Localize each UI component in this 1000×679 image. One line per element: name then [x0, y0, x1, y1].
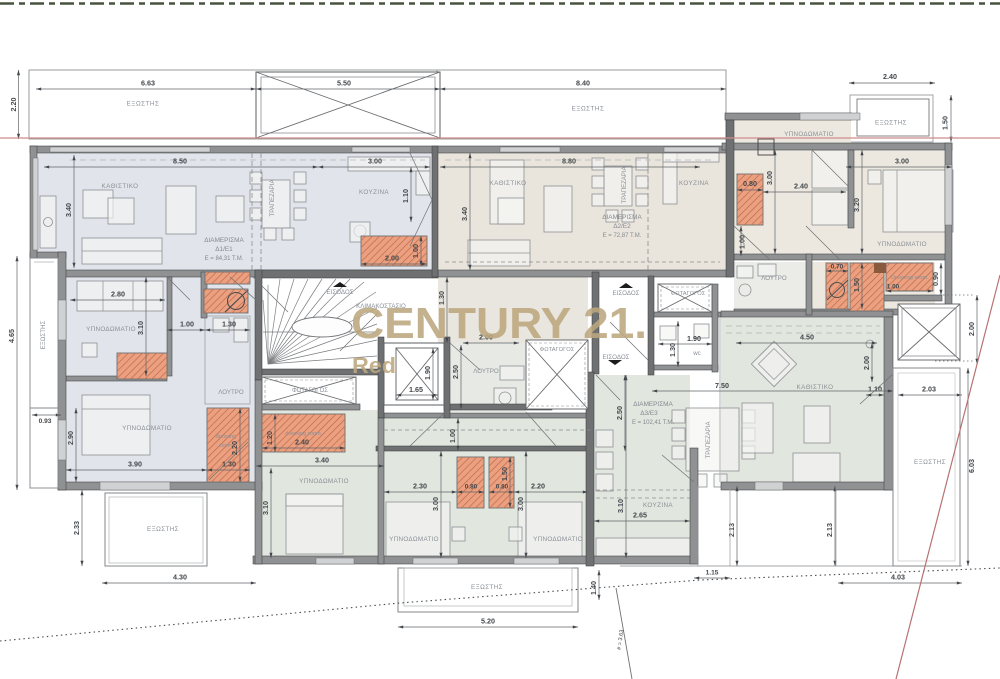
svg-text:3.00: 3.00: [895, 157, 909, 166]
svg-text:2.13: 2.13: [727, 523, 736, 537]
svg-text:ΚΟΥΖΙΝΑ: ΚΟΥΖΙΝΑ: [679, 180, 709, 187]
svg-text:ΦΩΤΑΓΩΓΟΣ: ΦΩΤΑΓΩΓΟΣ: [292, 388, 328, 394]
svg-text:1.90: 1.90: [423, 366, 432, 380]
svg-text:8.80: 8.80: [562, 157, 576, 166]
svg-text:5.50: 5.50: [337, 79, 351, 88]
svg-text:Dressing room: Dressing room: [891, 275, 928, 281]
svg-text:2.50: 2.50: [451, 365, 460, 379]
svg-text:ΥΠΝΟΔΩΜΑΤΙΟ: ΥΠΝΟΔΩΜΑΤΙΟ: [877, 241, 927, 248]
svg-text:3.00: 3.00: [765, 171, 774, 185]
svg-text:Δ3/Ε3: Δ3/Ε3: [640, 410, 658, 417]
svg-text:1.30: 1.30: [668, 343, 677, 357]
svg-text:1.00: 1.00: [411, 244, 420, 258]
svg-text:1.30: 1.30: [222, 460, 236, 469]
svg-text:3.00: 3.00: [431, 497, 440, 511]
svg-text:ΛΟΥΤΡΟ: ΛΟΥΤΡΟ: [473, 368, 499, 375]
svg-text:ΔΙΑΜΕΡΙΣΜΑ: ΔΙΑΜΕΡΙΣΜΑ: [602, 214, 642, 221]
svg-text:3.20: 3.20: [852, 198, 861, 212]
svg-text:1.00: 1.00: [887, 284, 900, 291]
svg-text:1.00: 1.00: [738, 235, 747, 249]
svg-text:2.40: 2.40: [295, 438, 309, 447]
svg-text:ΚΑΘΙΣΤΙΚΟ: ΚΑΘΙΣΤΙΚΟ: [797, 384, 834, 391]
svg-text:ΚΟΥΖΙΝΑ: ΚΟΥΖΙΝΑ: [359, 189, 389, 196]
svg-text:ΤΡΑΠΕΖΑΡΙΑ: ΤΡΑΠΕΖΑΡΙΑ: [622, 167, 628, 204]
svg-text:0.70: 0.70: [831, 264, 844, 271]
svg-text:2.20: 2.20: [230, 441, 239, 455]
svg-text:ΕΙΣΟΔΟΣ: ΕΙΣΟΔΟΣ: [327, 289, 354, 296]
svg-text:ΚΑΘΙΣΤΙΚΟ: ΚΑΘΙΣΤΙΚΟ: [102, 183, 139, 190]
svg-text:4.03: 4.03: [891, 573, 905, 582]
svg-text:Δ1/Ε1: Δ1/Ε1: [215, 246, 233, 253]
svg-text:Δ2/Ε2: Δ2/Ε2: [613, 223, 631, 230]
svg-text:wc: wc: [692, 350, 701, 357]
svg-text:2.00: 2.00: [862, 356, 871, 370]
svg-text:4.65: 4.65: [7, 329, 16, 343]
svg-text:3.40: 3.40: [460, 207, 469, 221]
svg-text:2.65: 2.65: [633, 511, 647, 520]
svg-text:ΥΠΝΟΔΩΜΑΤΙΟ: ΥΠΝΟΔΩΜΑΤΙΟ: [86, 326, 136, 333]
svg-text:0.90: 0.90: [931, 272, 940, 286]
svg-text:2.00: 2.00: [385, 254, 399, 263]
svg-text:1.65: 1.65: [409, 385, 423, 394]
svg-text:ΕΞΩΣΤΗΣ: ΕΞΩΣΤΗΣ: [471, 584, 503, 591]
svg-text:3.40: 3.40: [315, 456, 329, 465]
svg-text:6.63: 6.63: [141, 79, 155, 88]
svg-text:ΕΞΩΣΤΗΣ: ΕΞΩΣΤΗΣ: [875, 120, 907, 127]
svg-text:Ε = 102,41 Τ.Μ.: Ε = 102,41 Τ.Μ.: [632, 420, 674, 426]
svg-text:3.10: 3.10: [136, 321, 145, 335]
svg-text:1.10: 1.10: [868, 385, 882, 394]
svg-text:2.13: 2.13: [825, 523, 834, 537]
svg-text:Ε = 84,31 Τ.Μ.: Ε = 84,31 Τ.Μ.: [205, 256, 244, 262]
svg-text:ΚΟΥΖΙΝΑ: ΚΟΥΖΙΝΑ: [643, 502, 673, 509]
svg-text:ΕΙΣΟΔΟΣ: ΕΙΣΟΔΟΣ: [603, 354, 630, 361]
svg-text:1.50: 1.50: [852, 278, 861, 292]
svg-text:ΤΡΑΠΕΖΑΡΙΑ: ΤΡΑΠΕΖΑΡΙΑ: [706, 422, 712, 459]
svg-text:ΔΙΑΜΕΡΙΣΜΑ: ΔΙΑΜΕΡΙΣΜΑ: [204, 237, 244, 244]
svg-text:1.50: 1.50: [500, 467, 509, 481]
svg-text:2.20: 2.20: [9, 98, 18, 112]
svg-text:ΕΞΩΣΤΗΣ: ΕΞΩΣΤΗΣ: [147, 526, 179, 533]
svg-text:2.33: 2.33: [72, 521, 81, 535]
svg-text:7.50: 7.50: [715, 381, 729, 390]
svg-text:2.40: 2.40: [883, 72, 897, 81]
svg-text:ΔΙΑΜΕΡΙΣΜΑ: ΔΙΑΜΕΡΙΣΜΑ: [633, 401, 673, 408]
svg-text:1.00: 1.00: [180, 320, 194, 329]
svg-text:ΛΟΥΤΡΟ: ΛΟΥΤΡΟ: [218, 389, 244, 396]
svg-text:ΦΩΤΑΓΩΓΟΣ: ΦΩΤΑΓΩΓΟΣ: [671, 291, 706, 297]
svg-text:0.93: 0.93: [39, 418, 52, 425]
svg-text:dressing room: dressing room: [285, 431, 321, 437]
svg-text:0.80: 0.80: [496, 484, 509, 491]
svg-text:2.90: 2.90: [66, 431, 75, 445]
svg-text:1.15: 1.15: [706, 570, 719, 577]
svg-text:ΥΠΝΟΔΩΜΑΤΙΟ: ΥΠΝΟΔΩΜΑΤΙΟ: [533, 536, 583, 543]
svg-text:2.20: 2.20: [531, 482, 545, 491]
svg-text:ΥΠΝΟΔΩΜΑΤΙΟ: ΥΠΝΟΔΩΜΑΤΙΟ: [389, 536, 439, 543]
svg-text:1.00: 1.00: [448, 429, 457, 443]
svg-text:2.00: 2.00: [967, 322, 976, 336]
svg-text:ΕΞΩΣΤΗΣ: ΕΞΩΣΤΗΣ: [40, 320, 47, 349]
svg-text:dressing: dressing: [216, 434, 236, 440]
svg-text:2.80: 2.80: [111, 290, 125, 299]
svg-text:3.00: 3.00: [368, 157, 382, 166]
svg-text:1.30: 1.30: [222, 320, 236, 329]
svg-text:ΤΡΑΠΕΖΑΡΙΑ: ΤΡΑΠΕΖΑΡΙΑ: [270, 180, 276, 217]
svg-text:4.30: 4.30: [173, 573, 187, 582]
svg-text:ΕΞΩΣΤΗΣ: ΕΞΩΣΤΗΣ: [914, 459, 946, 466]
svg-text:CENTURY 21.: CENTURY 21.: [351, 299, 647, 348]
svg-text:ΥΠΝΟΔΩΜΑΤΙΟ: ΥΠΝΟΔΩΜΑΤΙΟ: [784, 131, 834, 138]
svg-text:ΕΙΣΟΔΟΣ: ΕΙΣΟΔΟΣ: [613, 290, 640, 297]
svg-text:2.03: 2.03: [922, 385, 936, 394]
svg-text:5.20: 5.20: [481, 617, 495, 626]
svg-text:Ε = 72,87 Τ.Μ.: Ε = 72,87 Τ.Μ.: [603, 233, 642, 239]
svg-text:0.80: 0.80: [743, 179, 757, 188]
svg-text:6.03: 6.03: [967, 459, 976, 473]
svg-text:0.80: 0.80: [465, 484, 478, 491]
svg-text:1.90: 1.90: [687, 334, 701, 343]
svg-text:ΥΠΝΟΔΩΜΑΤΙΟ: ΥΠΝΟΔΩΜΑΤΙΟ: [122, 425, 172, 432]
svg-text:8.40: 8.40: [576, 79, 590, 88]
svg-text:3.00: 3.00: [516, 497, 525, 511]
svg-text:ΕΞΩΣΤΗΣ: ΕΞΩΣΤΗΣ: [572, 106, 605, 113]
svg-text:1.20: 1.20: [265, 431, 274, 445]
svg-text:8.50: 8.50: [173, 157, 187, 166]
svg-text:ΥΠΝΟΔΩΜΑΤΙΟ: ΥΠΝΟΔΩΜΑΤΙΟ: [299, 478, 349, 485]
svg-text:2.30: 2.30: [413, 482, 427, 491]
svg-text:3.40: 3.40: [64, 203, 73, 217]
svg-text:ΚΑΘΙΣΤΙΚΟ: ΚΑΘΙΣΤΙΚΟ: [490, 180, 527, 187]
svg-text:3.90: 3.90: [128, 460, 142, 469]
svg-text:4.50: 4.50: [800, 333, 814, 342]
svg-text:2.50: 2.50: [615, 406, 624, 420]
svg-text:1.10: 1.10: [401, 189, 410, 203]
svg-text:ΕΞΩΣΤΗΣ: ΕΞΩΣΤΗΣ: [127, 101, 160, 108]
svg-text:Red: Red: [352, 353, 396, 378]
svg-text:ΛΟΥΤΡΟ: ΛΟΥΤΡΟ: [761, 275, 787, 282]
svg-text:2.40: 2.40: [794, 182, 808, 191]
svg-text:3.10: 3.10: [616, 499, 625, 513]
svg-text:3.10: 3.10: [261, 501, 270, 515]
svg-text:1.50: 1.50: [941, 116, 950, 130]
